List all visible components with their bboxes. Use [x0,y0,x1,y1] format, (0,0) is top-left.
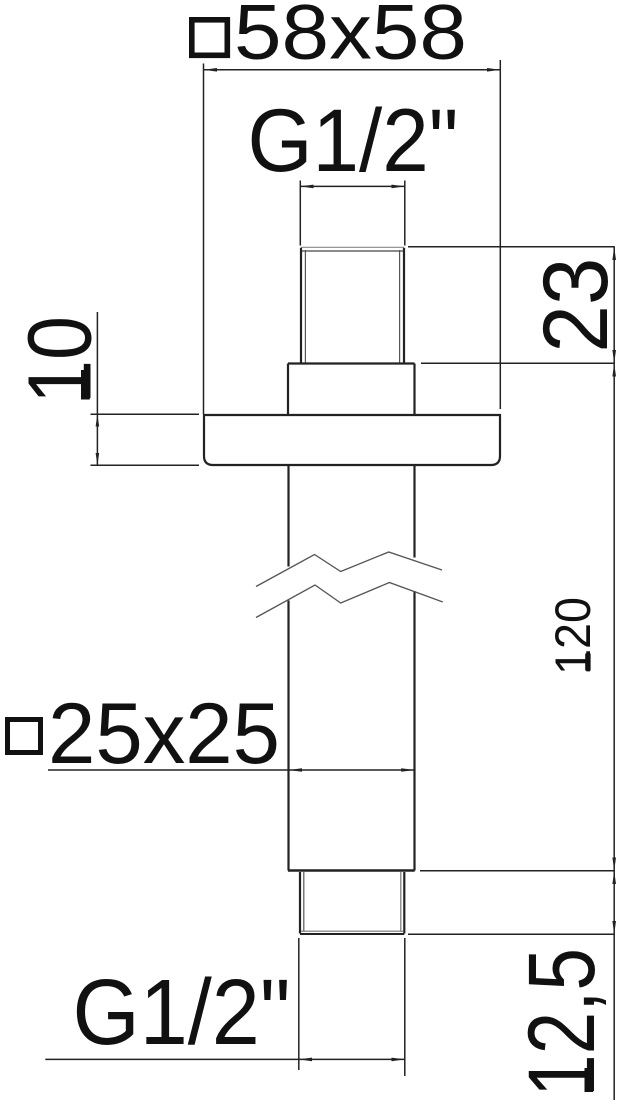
svg-text:23: 23 [525,258,618,353]
svg-text:G1/2": G1/2" [248,90,459,190]
svg-text:58x58: 58x58 [234,0,467,76]
svg-text:12,5: 12,5 [509,948,615,1097]
svg-text:10: 10 [11,316,111,404]
svg-text:25x25: 25x25 [48,686,280,782]
svg-text:120: 120 [545,597,601,675]
svg-text:G1/2": G1/2" [73,960,291,1064]
